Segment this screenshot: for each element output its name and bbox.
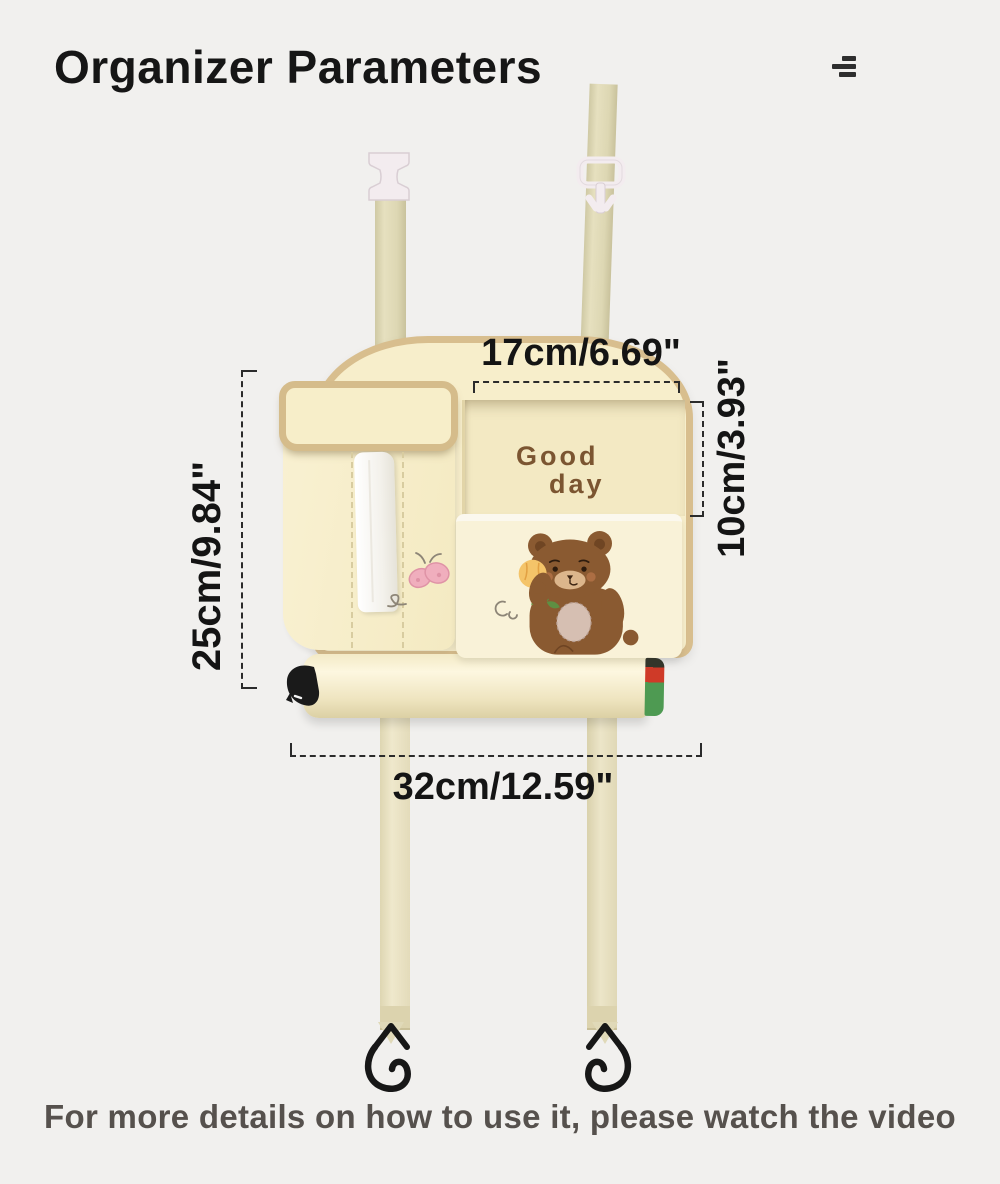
dimension-line-pocket-depth xyxy=(702,401,704,517)
dimension-line-top-width xyxy=(473,381,680,383)
pocket-print-text: day xyxy=(549,469,605,500)
tick xyxy=(241,687,257,689)
tick xyxy=(700,743,702,757)
dimension-line-bottom-width xyxy=(290,755,702,757)
s-hook-icon xyxy=(578,1022,634,1098)
s-hook-icon xyxy=(362,1022,418,1098)
right-buckle-icon xyxy=(576,156,626,222)
menu-bar xyxy=(832,64,856,69)
page-title: Organizer Parameters xyxy=(54,40,542,94)
roll-colorful-end xyxy=(644,658,664,716)
black-clip-icon xyxy=(283,662,323,710)
doodle-ce-icon xyxy=(492,598,522,622)
stitch-line xyxy=(402,452,404,648)
hamburger-menu-icon[interactable] xyxy=(830,56,856,80)
left-buckle-icon xyxy=(366,152,412,202)
menu-bar xyxy=(842,56,856,61)
tick xyxy=(290,743,292,757)
menu-bar xyxy=(839,72,856,77)
bear-with-tulip-illustration xyxy=(500,530,640,658)
tick xyxy=(473,381,475,393)
dimension-label-top-width: 17cm/6.69" xyxy=(431,332,731,375)
dimension-label-height: 25cm/9.84" xyxy=(185,416,231,716)
tissue-pocket-flap xyxy=(279,381,458,451)
stitch-line xyxy=(351,452,353,648)
dimension-label-pocket-depth: 10cm/3.93" xyxy=(711,318,755,598)
footer-caption: For more details on how to use it, pleas… xyxy=(0,1098,1000,1136)
tick xyxy=(678,381,680,393)
bottom-right-strap xyxy=(587,714,617,1026)
dimension-line-height xyxy=(241,371,243,689)
top-left-strap xyxy=(375,194,406,356)
dimension-label-bottom-width: 32cm/12.59" xyxy=(353,766,653,809)
pocket-print-text: Good xyxy=(516,441,598,472)
tick xyxy=(690,401,704,403)
product-dimension-diagram: Organizer Parameters Good day xyxy=(0,0,1000,1184)
tick xyxy=(241,370,257,372)
rolled-table-mat xyxy=(303,654,647,718)
doodle-squiggle-icon xyxy=(386,586,416,612)
tick xyxy=(690,515,704,517)
bottom-left-strap xyxy=(380,714,410,1026)
